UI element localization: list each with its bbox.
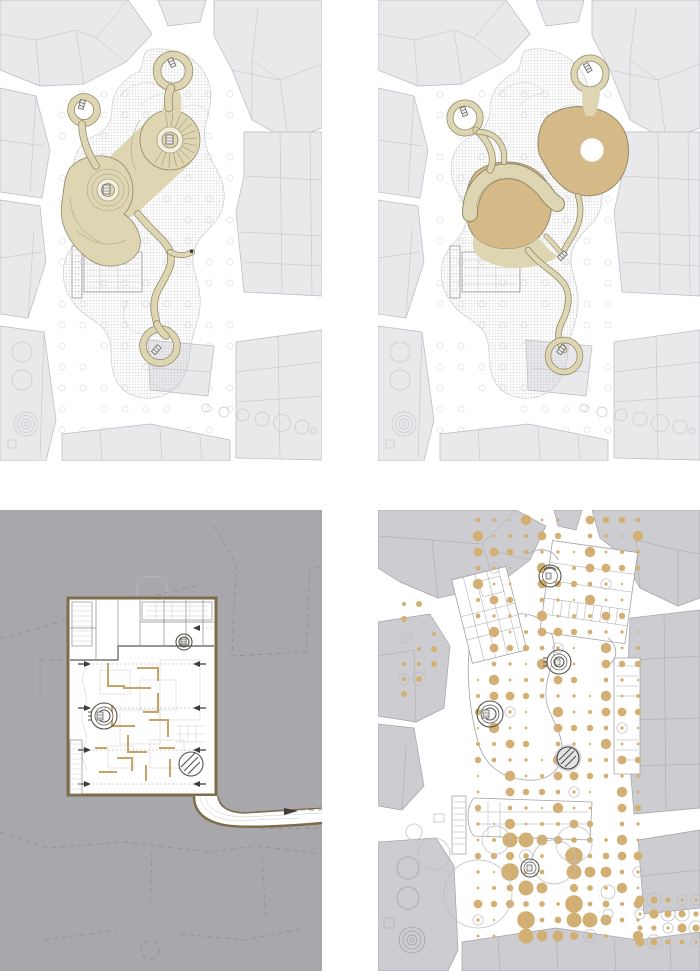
plaza-oculus: [580, 138, 604, 162]
pavilion-plan: [452, 566, 527, 663]
site-plan-terraces: [378, 0, 700, 461]
excavation-plan: [68, 576, 216, 795]
panel-bottom-right: [378, 510, 700, 971]
site-plan-paths: [0, 0, 322, 461]
panel-top-right: [378, 0, 700, 461]
panel-bottom-left: [0, 510, 322, 971]
bench-glyph: [460, 106, 468, 116]
spiral-stair: [477, 701, 503, 727]
plan-sheet: [0, 0, 700, 971]
underground-excavation-plan: [0, 510, 322, 971]
panel-top-left: [0, 0, 322, 461]
roof-plan-tree-grid: [378, 510, 700, 971]
spiral-stair: [521, 859, 539, 877]
spiral-stair: [539, 565, 561, 587]
bench-glyph: [583, 62, 592, 72]
ramp-stair-circle: [555, 745, 582, 772]
